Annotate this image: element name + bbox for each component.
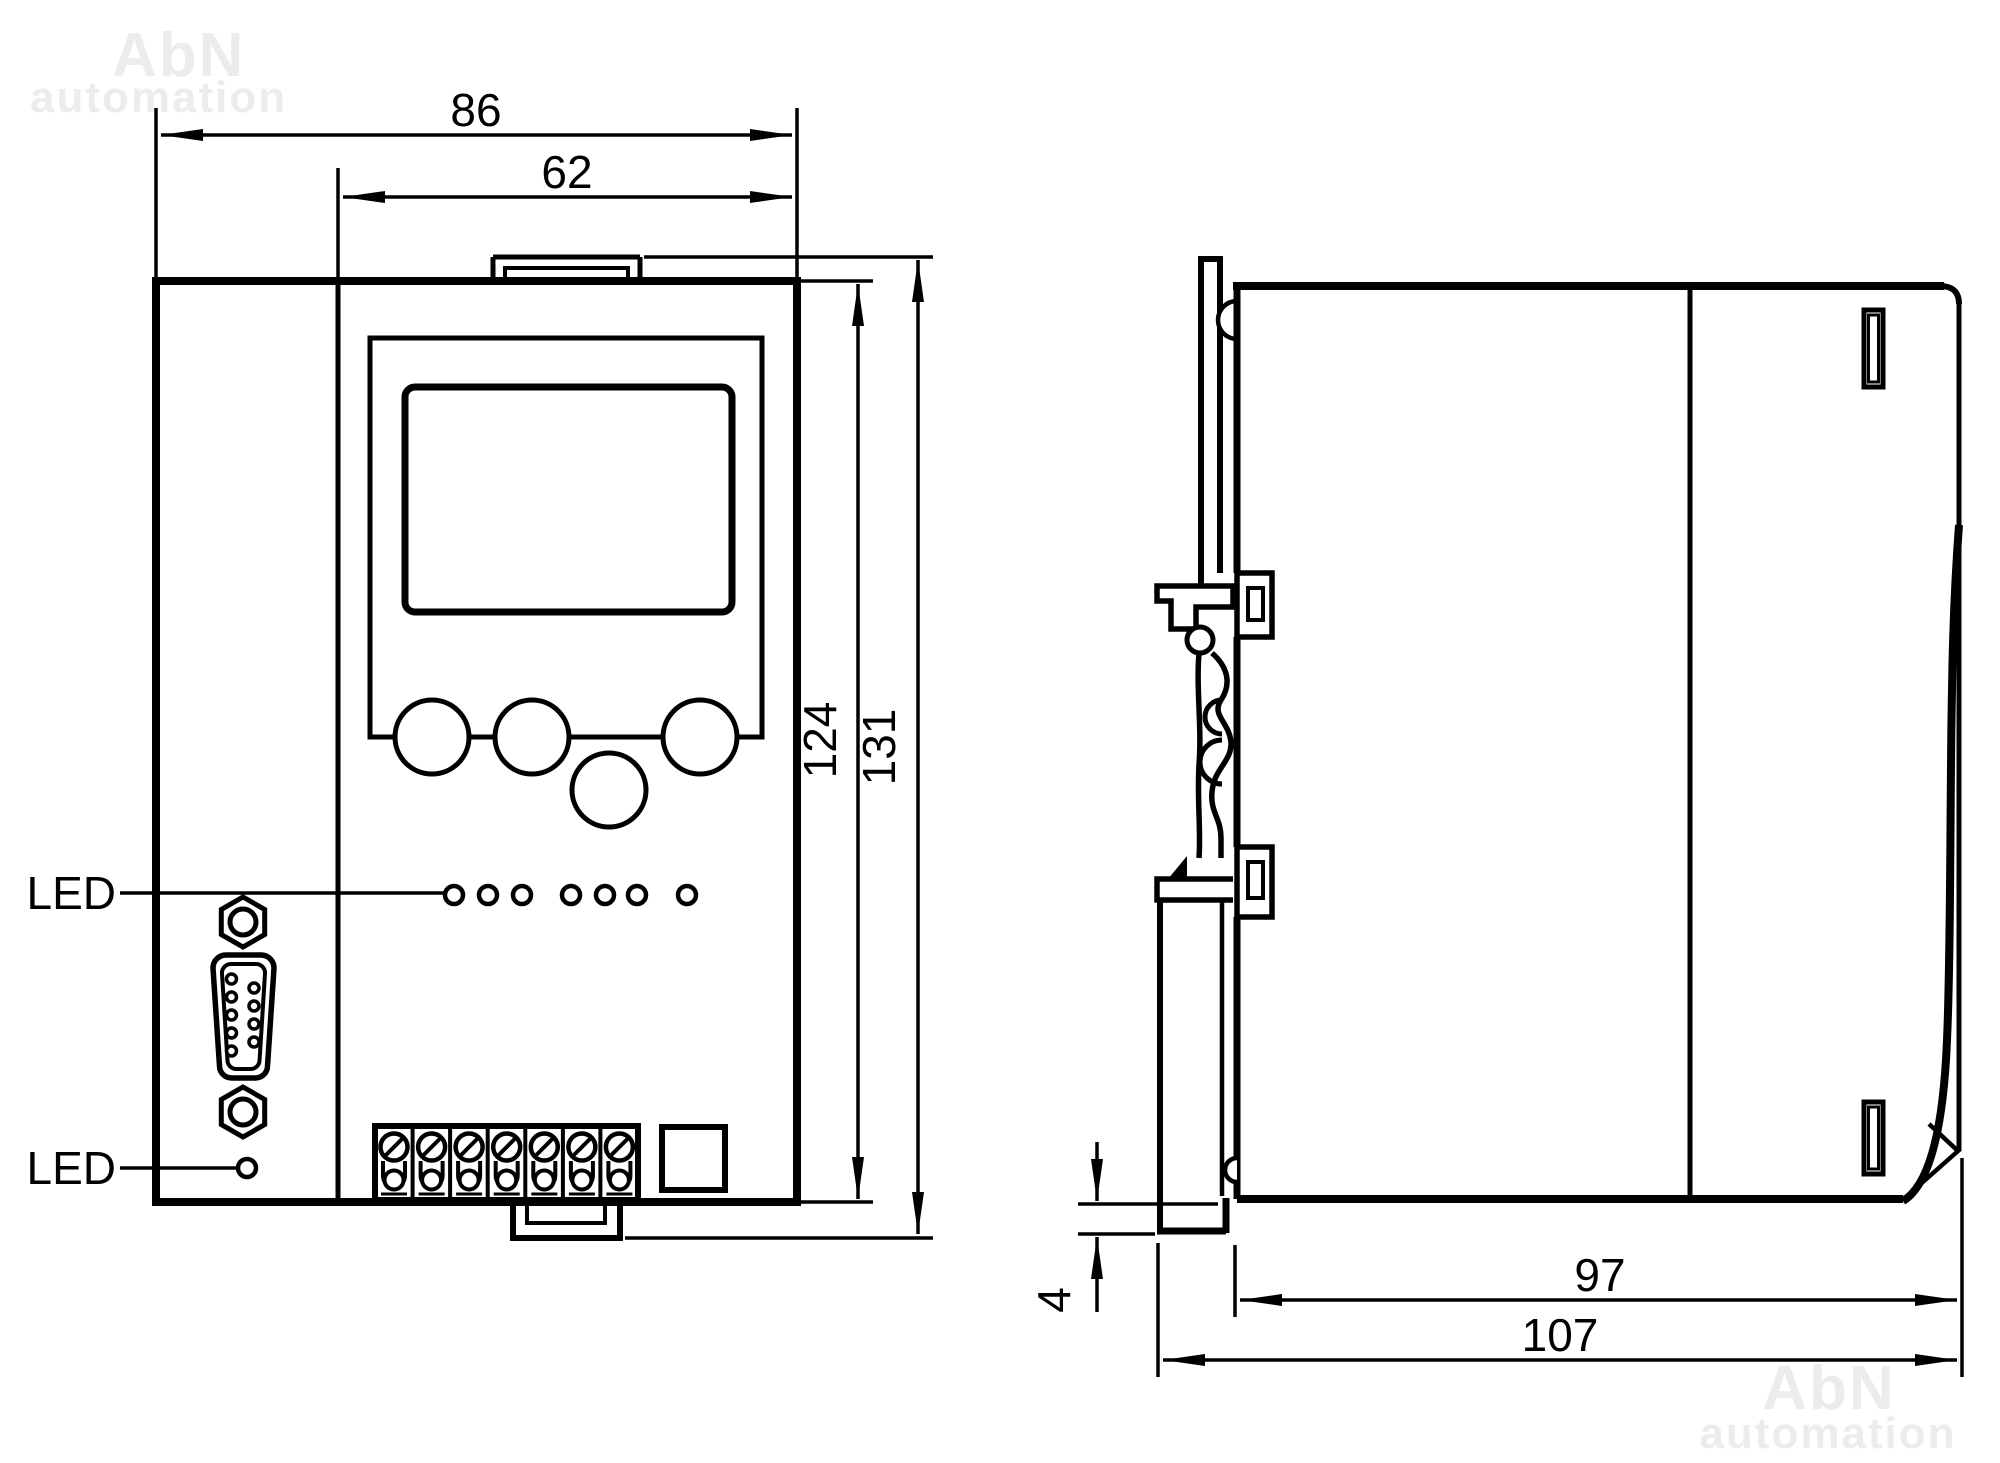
- side-body-corner: [1940, 286, 1959, 304]
- rail-bracket-upper-slot: [1248, 588, 1263, 620]
- dim-label-width-total: 86: [450, 84, 501, 136]
- status-led: [238, 1159, 256, 1177]
- db9-pin: [227, 1010, 237, 1020]
- db9-pin: [227, 992, 237, 1002]
- dimension-drawing: AbN automation AbN automation: [0, 0, 2000, 1463]
- db9-pin: [249, 1001, 259, 1011]
- dim-label-width-panel: 62: [541, 146, 592, 198]
- watermark-top-left: AbN automation: [30, 21, 287, 122]
- watermark-word-text: automation: [1699, 1409, 1956, 1458]
- panel-button: [395, 700, 469, 774]
- din-clip-claw-upper: [1157, 586, 1233, 629]
- housing-slot-top: [1864, 310, 1883, 387]
- led-indicator-dot: [562, 886, 580, 904]
- side-view-dimensions: 4 97 107: [1028, 1142, 1962, 1377]
- led-indicator-dot: [678, 886, 696, 904]
- technical-drawing-canvas: AbN automation AbN automation: [0, 0, 2000, 1463]
- side-view: 4 97 107: [1028, 259, 1962, 1377]
- dim-label-depth-total: 107: [1522, 1309, 1599, 1361]
- display-screen: [405, 387, 732, 612]
- dim-label-height-total: 131: [853, 709, 905, 786]
- panel-button: [572, 753, 646, 827]
- bottom-mount-tab: [513, 1202, 620, 1238]
- db9-pin: [249, 1019, 259, 1029]
- led-indicator-dot: [479, 886, 497, 904]
- din-clip-claw-lower: [1157, 879, 1233, 900]
- din-clip-pivot: [1187, 627, 1213, 653]
- hex-jackscrew-bottom-bore: [230, 1099, 256, 1125]
- db9-pin: [227, 974, 237, 984]
- watermark-bottom-right: AbN automation: [1699, 1354, 1956, 1458]
- cover-curve-edge: [1903, 525, 1959, 1201]
- db9-connector-assembly: [213, 897, 274, 1137]
- dim-label-depth-body: 97: [1574, 1249, 1625, 1301]
- terminal-clamp-bore: [385, 1171, 404, 1190]
- rail-bracket-lower-slot: [1248, 862, 1263, 898]
- led-indicator-dot: [513, 886, 531, 904]
- db9-pin: [227, 1046, 237, 1056]
- hex-jackscrew-top-bore: [230, 909, 256, 935]
- panel-button: [495, 700, 569, 774]
- dim-label-height-body: 124: [794, 702, 846, 779]
- led-callout-label-bottom: LED: [27, 1142, 116, 1194]
- terminal-block: [375, 1126, 638, 1200]
- db9-pin: [249, 983, 259, 993]
- dim-label-plate-thickness: 4: [1028, 1287, 1080, 1313]
- led-callout-label-top: LED: [27, 867, 116, 919]
- watermark-word-text: automation: [30, 73, 287, 122]
- panel-button: [663, 700, 737, 774]
- db9-pin: [249, 1037, 259, 1047]
- address-switch-box: [662, 1127, 725, 1190]
- din-clip-wedge: [1168, 856, 1187, 879]
- front-view: LED LED: [27, 84, 933, 1238]
- detent-bump-bottom: [1225, 1158, 1237, 1182]
- led-indicator-dot: [628, 886, 646, 904]
- db9-pin: [227, 1028, 237, 1038]
- led-indicator-dot: [596, 886, 614, 904]
- led-indicator-dot: [445, 886, 463, 904]
- housing-slot-bottom: [1864, 1102, 1883, 1174]
- din-rail-plate-upper: [1201, 259, 1220, 585]
